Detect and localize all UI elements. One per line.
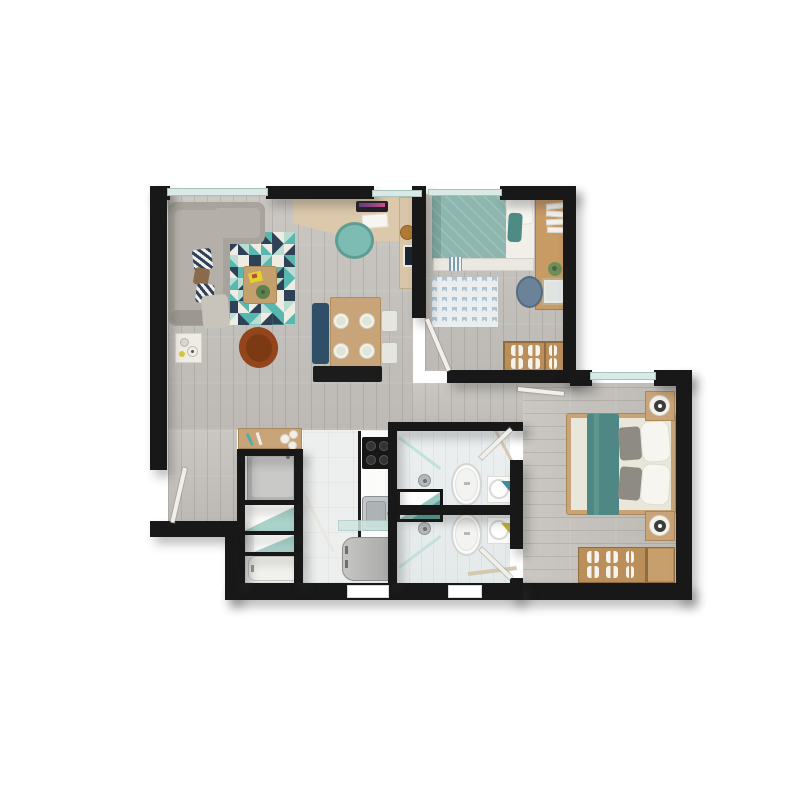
rug-cell xyxy=(261,313,273,325)
fridge xyxy=(342,537,392,581)
rug-triangle xyxy=(284,244,296,256)
wall-bath-right xyxy=(510,460,523,549)
desk-chair xyxy=(335,222,374,259)
wall-bath-right xyxy=(510,422,523,429)
dining-bench-black xyxy=(313,366,382,382)
lemon xyxy=(179,351,185,357)
pillow-gray xyxy=(618,426,642,460)
plant-center xyxy=(552,266,557,271)
bed-throw-highlight xyxy=(594,414,599,515)
shoes xyxy=(511,358,523,369)
sofa-chaise-seat xyxy=(214,208,260,238)
rug-cell xyxy=(284,301,296,313)
rug-triangle xyxy=(249,313,261,325)
shoes xyxy=(606,566,618,578)
wall-laundry-right xyxy=(294,449,303,583)
wall-bedroom-main-top xyxy=(570,370,592,386)
rug-cell xyxy=(261,244,273,256)
rug-triangle xyxy=(284,255,296,267)
dining-chair xyxy=(381,310,398,332)
bed-small-duvet xyxy=(432,194,508,260)
shoes xyxy=(606,551,618,563)
fridge-handle xyxy=(345,546,348,554)
shower-head-dot xyxy=(423,479,427,483)
rug-cell xyxy=(284,267,296,279)
shoes xyxy=(549,358,557,369)
rug-cell xyxy=(249,244,261,256)
wall-laundry-shelf xyxy=(241,531,298,535)
glass-shelf xyxy=(338,520,392,531)
rug-cell xyxy=(284,232,296,244)
wall-kitchen-bath xyxy=(388,422,397,583)
burner xyxy=(366,441,376,451)
lamp-dot xyxy=(658,404,662,408)
wall-bath-mid xyxy=(397,505,510,515)
shoes xyxy=(528,345,540,356)
wall-laundry-left xyxy=(237,449,245,583)
rug-triangle xyxy=(284,232,296,244)
rug-triangle xyxy=(261,313,273,325)
rug-cell xyxy=(284,244,296,256)
rug-cell xyxy=(238,313,250,325)
rug-triangle xyxy=(272,232,284,244)
striped-cushion xyxy=(449,257,462,271)
cabinet-divider xyxy=(544,341,546,373)
rug-cell xyxy=(284,313,296,325)
tray-handle xyxy=(251,565,254,572)
lamp-dot xyxy=(658,524,662,528)
plant-center xyxy=(261,290,265,294)
rug-triangle xyxy=(284,278,296,290)
window xyxy=(372,190,422,197)
plate-inner xyxy=(362,346,372,356)
tub-drain xyxy=(464,482,470,485)
rug-cell xyxy=(272,244,284,256)
tub-drain xyxy=(464,532,470,535)
laptop-screen xyxy=(359,203,385,207)
floor-entry xyxy=(168,430,237,523)
vent-opening xyxy=(347,585,389,598)
rug-cell xyxy=(272,232,284,244)
shower-head-dot xyxy=(423,527,427,531)
wall-top-mid xyxy=(266,186,374,199)
rug-triangle xyxy=(238,244,250,256)
bed-throw-teal xyxy=(587,414,619,515)
shoes xyxy=(511,345,523,356)
pillow-gray xyxy=(618,466,643,501)
plate-inner xyxy=(362,316,372,326)
wall-bedroom-small-right xyxy=(563,186,576,383)
wall-bedroom-main-right xyxy=(676,370,692,600)
window xyxy=(590,372,656,380)
wardrobe-shelf xyxy=(648,549,673,581)
rug-triangle xyxy=(272,313,284,325)
rug-triangle xyxy=(284,313,296,325)
cup-dot xyxy=(191,350,194,353)
wall-left xyxy=(150,186,167,470)
wall-bath-right xyxy=(510,578,523,600)
shoes xyxy=(626,551,634,563)
dining-bench-teal xyxy=(312,303,329,364)
dining-chair xyxy=(381,342,398,364)
utility-tray xyxy=(248,556,300,581)
vanity-chair xyxy=(516,276,543,308)
dish xyxy=(289,430,298,439)
rug-triangle xyxy=(261,244,273,256)
wall-laundry-shelf xyxy=(241,500,298,505)
wall-laundry-top xyxy=(237,449,302,456)
window xyxy=(167,188,268,196)
rug-cell xyxy=(272,313,284,325)
pillow-white xyxy=(640,463,672,506)
rug-cell xyxy=(284,290,296,302)
wall-laundry-shelf xyxy=(241,552,298,556)
rug-cell xyxy=(249,313,261,325)
rug-triangle xyxy=(249,244,261,256)
shoes xyxy=(528,358,540,369)
sofa-throw xyxy=(201,294,231,329)
vent-opening xyxy=(448,585,482,598)
shoes xyxy=(587,566,599,578)
wall-bath-top xyxy=(397,422,523,431)
pillow-teal xyxy=(507,213,522,243)
rug-triangle xyxy=(284,290,296,302)
rug-triangle xyxy=(238,313,250,325)
duvet-fold xyxy=(432,194,441,260)
rug-chevron xyxy=(432,277,498,327)
rug-cell xyxy=(238,244,250,256)
wall-bedroom-small-bottom xyxy=(447,370,575,383)
mirror-glass xyxy=(546,282,561,301)
shoes xyxy=(626,566,634,578)
shoes xyxy=(587,551,599,563)
wall-living-bedroom xyxy=(412,186,426,318)
rug-triangle xyxy=(284,267,296,279)
window xyxy=(428,189,502,196)
washer-lid xyxy=(252,457,293,497)
fridge-handle xyxy=(345,560,348,568)
shoes xyxy=(549,345,557,356)
plate-inner xyxy=(336,316,346,326)
burner xyxy=(366,455,376,465)
rug-triangle xyxy=(284,301,296,313)
rug-cell xyxy=(284,255,296,267)
rug-triangle xyxy=(272,244,284,256)
rug-cell xyxy=(284,278,296,290)
plate-inner xyxy=(336,346,346,356)
pillow-white xyxy=(639,420,671,463)
cup xyxy=(180,338,189,347)
floor-plan xyxy=(0,0,800,800)
